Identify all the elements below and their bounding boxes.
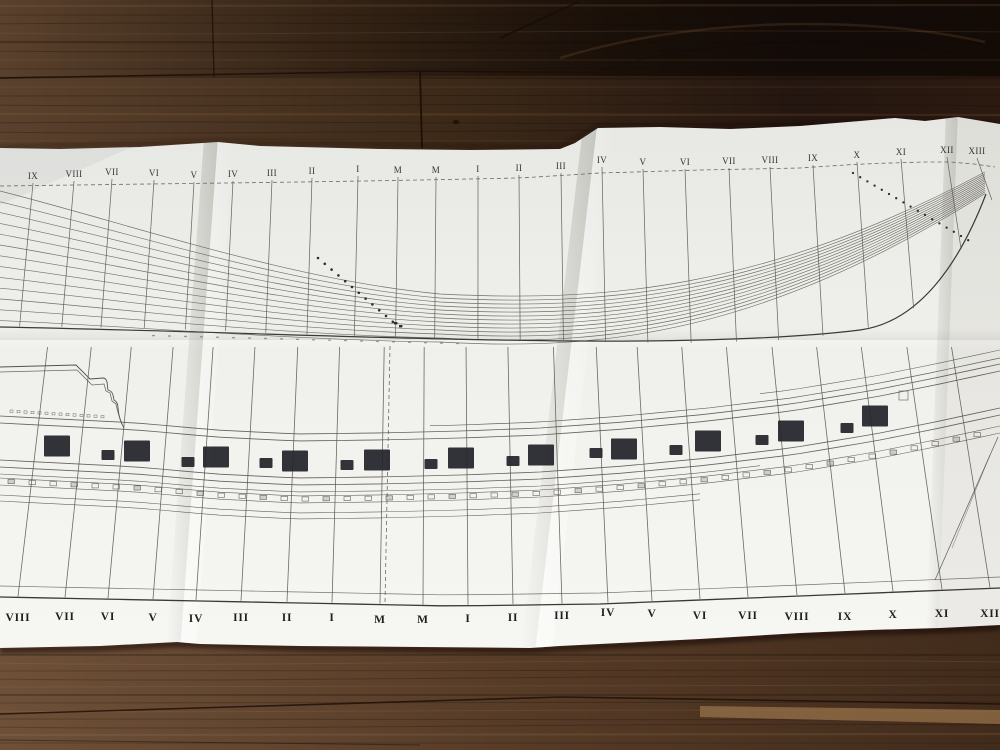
diagonal-dot [924,214,926,216]
station-label-top: IX [28,171,38,181]
base-tick [408,342,411,343]
wood-grain-streak [0,114,1000,115]
station-label-top: V [191,170,198,180]
diagonal-dot [902,201,904,203]
diagonal-dot [392,321,395,324]
base-tick [168,335,171,336]
station-label-top: V [640,157,647,167]
frame-mark [890,450,897,454]
base-tick [264,338,267,339]
base-tick [328,340,331,341]
base-tick [248,337,251,338]
station-label-top: IV [228,169,238,179]
gunport-large [124,441,150,462]
gunport-large [862,406,888,427]
diagonal-dot [931,218,933,220]
gunport-large [44,436,70,457]
station-label-top: I [476,164,479,174]
diagonal-dot [330,268,333,271]
base-tick [152,335,155,336]
station-label-top: XII [940,145,954,155]
base-tick [456,343,459,344]
wood-knot [453,120,460,124]
station-label-top: VI [680,157,690,167]
station-label-bottom: XI [935,608,949,620]
gunport-large [364,450,390,471]
frame-mark [260,495,267,499]
frame-mark [575,489,582,493]
station-label-top: I [356,164,359,174]
frame-mark [71,483,78,487]
station-label-bottom: III [233,612,249,624]
station-label-bottom: VIII [785,611,810,623]
station-label-top: VIII [761,155,778,165]
station-label-bottom: III [554,610,570,622]
diagonal-dot [394,322,397,324]
gunport-large [203,447,229,468]
station-label-top: VI [149,168,159,178]
gunport-small [425,459,438,469]
station-label-bottom: II [508,612,519,624]
station-label-bottom: VIII [6,612,31,624]
station-label-bottom: V [647,608,656,620]
station-label-bottom: VI [693,610,707,622]
diagonal-dot [399,325,402,327]
station-label-top: M [432,165,440,175]
diagonal-dot [938,222,940,224]
diagonal-dot [866,180,868,182]
frame-mark [764,470,771,474]
gunport-large [695,431,721,452]
station-label-top: III [267,168,277,178]
gunport-large [282,451,308,472]
station-label-top: VIII [65,169,82,179]
gunport-small [670,445,683,455]
base-tick [296,339,299,340]
station-label-bottom: IX [838,611,852,623]
diagonal-dot [888,193,890,195]
diagonal-dot [909,205,911,207]
base-tick [376,341,379,342]
station-label-bottom: IV [601,607,615,619]
station-label-top: IX [808,153,818,163]
diagonal-dot [895,197,897,199]
station-label-bottom: V [148,612,157,624]
frame-mark [197,491,204,495]
diagonal-dot [364,297,367,300]
station-label-top: X [854,150,861,160]
folded-plan-sheet [0,117,1000,648]
station-label-bottom: VII [738,610,758,622]
station-label-top: VII [105,167,119,177]
diagonal-dot [945,226,947,228]
frame-mark [512,492,519,496]
diagonal-dot [917,210,919,212]
station-label-bottom: II [282,612,293,624]
diagonal-dot [967,239,969,241]
frame-mark [134,486,141,490]
station-label-bottom: IV [189,613,203,625]
diagonal-dot [960,235,962,237]
station-label-top: XI [896,147,906,157]
wood-grain-streak [0,694,1000,695]
frame-mark [386,496,393,500]
wood-grain-streak [0,654,1000,655]
diagonal-dot [344,280,347,283]
gunport-small [756,435,769,445]
station-label-top: III [556,161,566,171]
wood-grain-streak [0,5,1000,6]
gunport-small [102,450,115,460]
gunport-large [448,448,474,469]
diagonal-dot [324,263,327,266]
station-label-bottom: VI [101,611,115,623]
diagonal-dot [371,303,374,306]
wood-grain-streak [0,734,1000,735]
station-label-bottom: VII [55,611,75,623]
frame-mark [701,478,708,482]
diagonal-dot [385,315,388,318]
diagonal-dot [953,231,955,233]
gunport-small [182,457,195,467]
frame-mark [323,497,330,501]
base-tick [216,337,219,338]
station-label-bottom: X [888,609,897,621]
station-label-top: II [309,166,316,176]
base-tick [280,338,283,339]
base-tick [424,342,427,343]
frame-mark [953,437,960,441]
frame-mark [638,484,645,488]
plan-photo: IXVIIIVIIVIVIVIIIIIIMMIIIIIIIVVVIVIIVIII… [0,0,1000,750]
diagonal-dot [852,172,854,174]
base-tick [232,337,235,338]
diagonal-dot [859,176,861,178]
station-label-bottom: XII [980,608,1000,620]
gunport-large [778,421,804,442]
station-label-top: M [394,165,402,175]
station-label-top: XIII [968,146,985,156]
base-tick [360,340,363,341]
station-label-bottom: I [465,613,470,625]
gunport-small [590,448,603,458]
diagonal-dot [337,274,340,277]
base-tick [184,336,187,337]
diagonal-dot [881,189,883,191]
base-tick [440,342,443,343]
station-label-bottom: M [374,614,386,626]
diagonal-dot [317,257,320,260]
station-label-top: IV [597,155,607,165]
station-label-bottom: M [417,614,429,626]
station-label-bottom: I [329,612,334,624]
diagonal-dot [378,309,381,312]
gunport-small [341,460,354,470]
base-tick [344,340,347,341]
gunport-small [507,456,520,466]
gunport-large [528,445,554,466]
station-label-top: II [516,163,523,173]
base-tick [200,336,203,337]
base-tick [312,339,315,340]
frame-mark [8,479,15,483]
frame-mark [827,461,834,465]
photo-scene: IXVIIIVIIVIVIVIIIIIIMMIIIIIIIVVVIVIIVIII… [0,0,1000,750]
gunport-small [260,458,273,468]
gunport-large [611,439,637,460]
diagonal-dot [873,184,875,186]
diagonal-dot [351,286,354,289]
frame-mark [449,494,456,498]
diagonal-dot [358,292,361,295]
base-tick [392,341,395,342]
gunport-small [841,423,854,433]
station-label-top: VII [722,156,736,166]
